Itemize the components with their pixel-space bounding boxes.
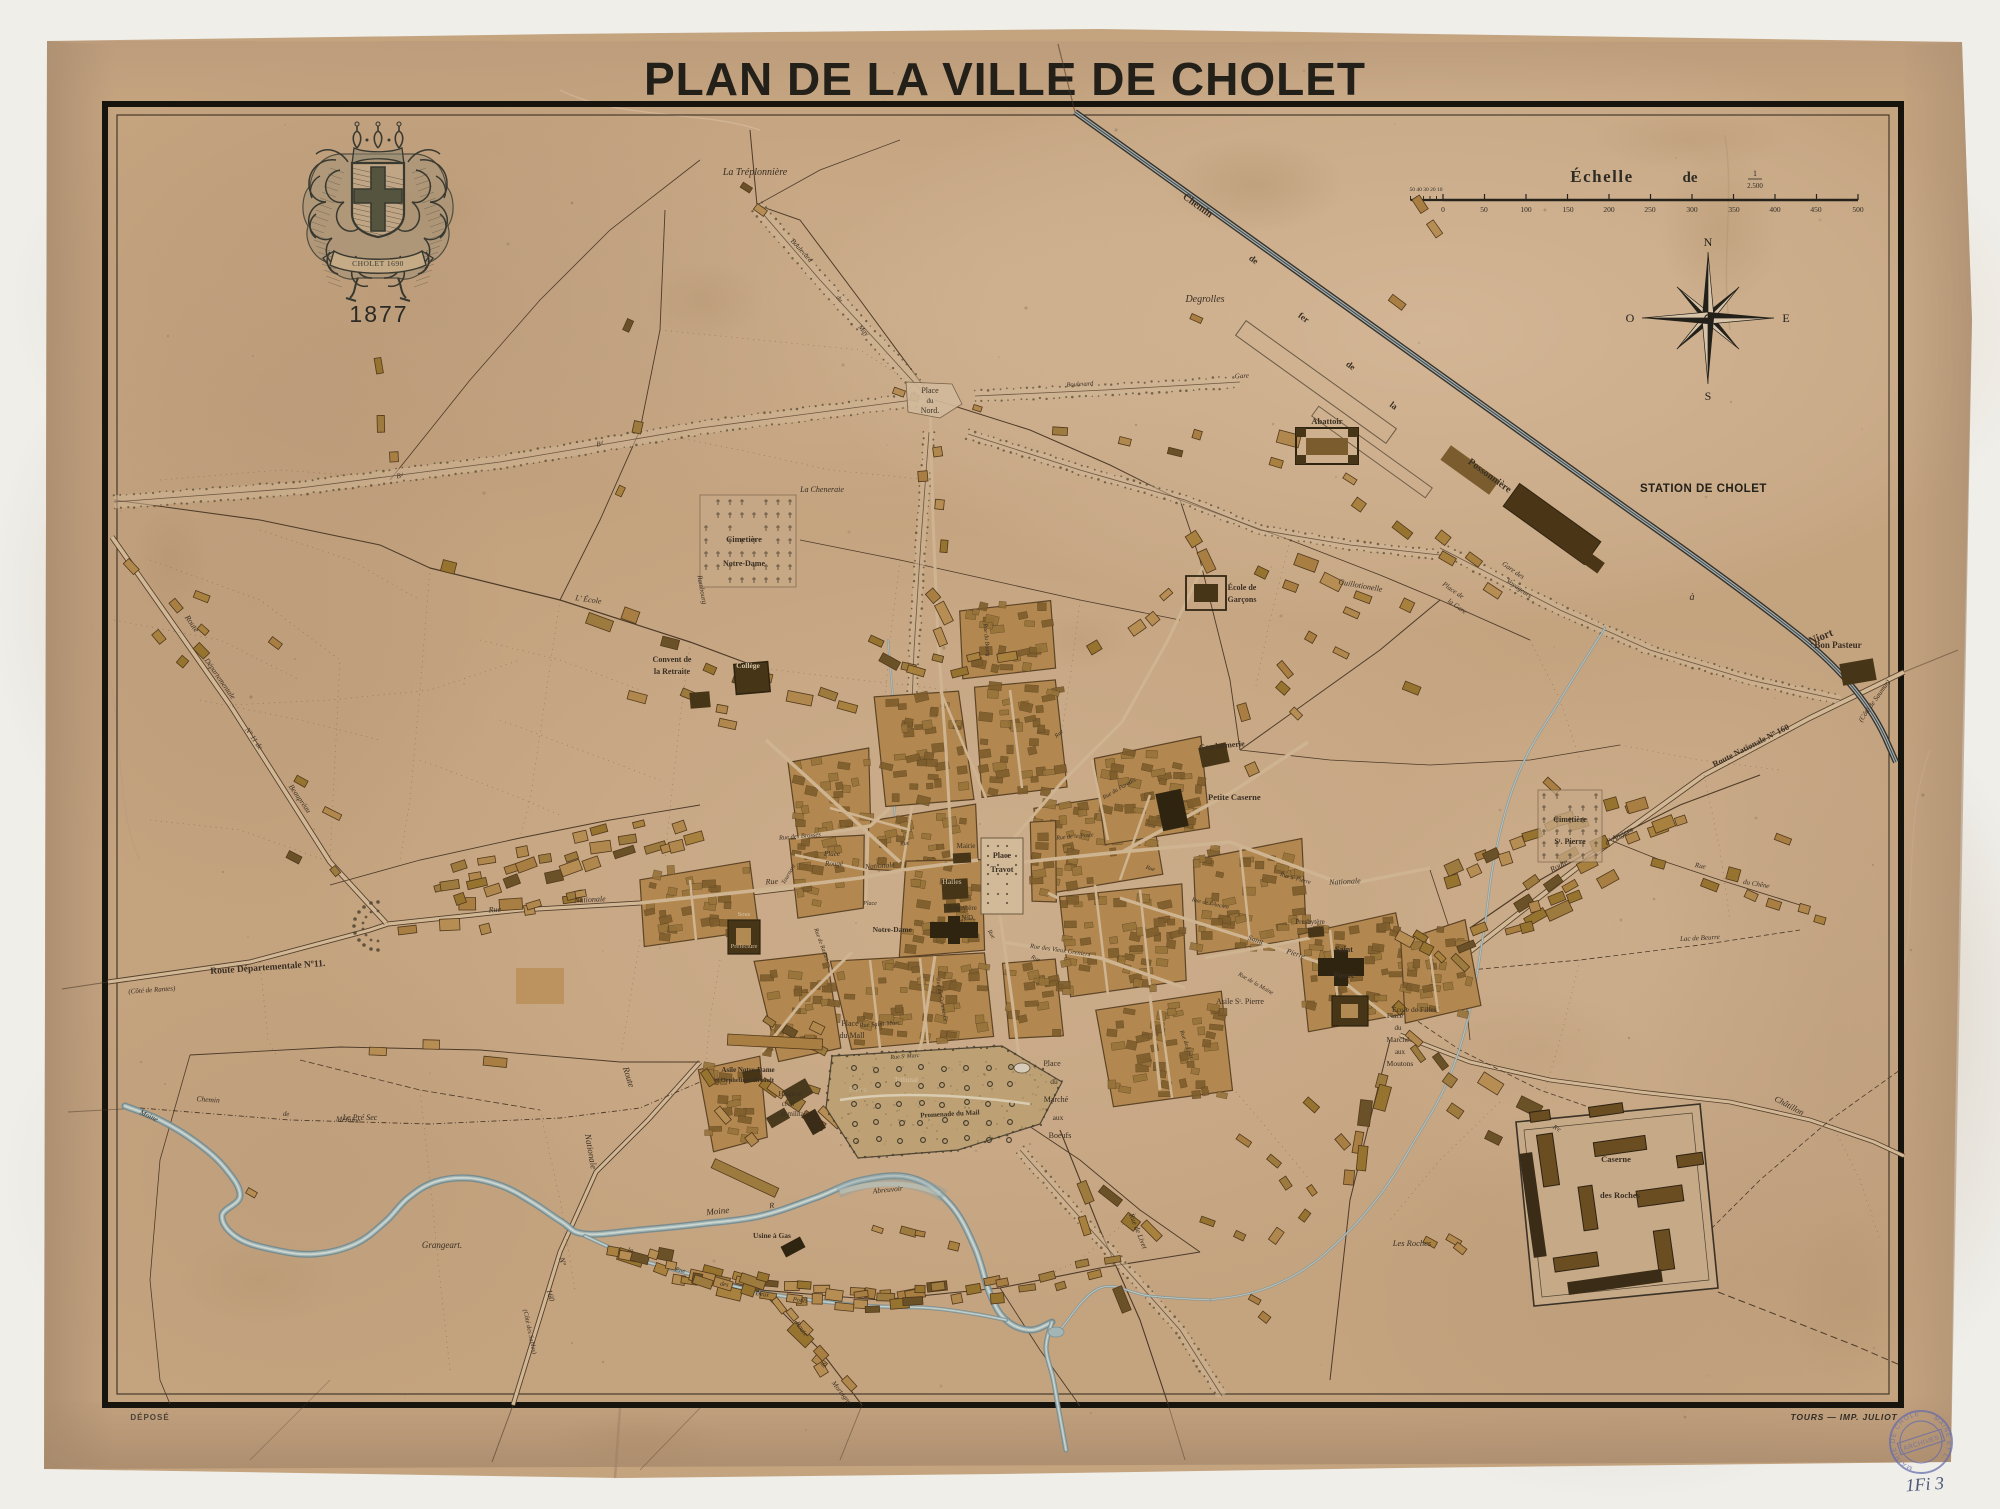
- svg-text:DÉPOSÉ: DÉPOSÉ: [130, 1413, 169, 1422]
- svg-text:1877: 1877: [349, 301, 408, 327]
- svg-text:Caserne: Caserne: [1601, 1154, 1631, 1164]
- svg-text:450: 450: [1810, 205, 1822, 214]
- svg-text:N.D.: N.D.: [961, 914, 975, 922]
- svg-text:Nationale: Nationale: [573, 894, 606, 905]
- svg-text:Rue: Rue: [487, 905, 501, 915]
- svg-text:O: O: [1626, 311, 1635, 325]
- svg-text:Place: Place: [993, 851, 1012, 860]
- svg-text:Les Roches: Les Roches: [1392, 1238, 1432, 1248]
- svg-text:150: 150: [1562, 205, 1574, 214]
- svg-text:Tribunal: Tribunal: [894, 1076, 918, 1084]
- svg-text:1: 1: [1753, 169, 1757, 178]
- svg-text:La Cheneraie: La Cheneraie: [799, 485, 844, 494]
- svg-text:Notre-Dame: Notre-Dame: [723, 559, 766, 568]
- svg-text:Asile Sᵗ. Pierre: Asile Sᵗ. Pierre: [1216, 997, 1264, 1006]
- svg-text:La Tréplonnière: La Tréplonnière: [722, 167, 788, 178]
- svg-text:Asile Notre-Dame: Asile Notre-Dame: [721, 1066, 774, 1074]
- svg-text:Marché: Marché: [1387, 1035, 1411, 1044]
- svg-text:de: de: [283, 1110, 290, 1118]
- svg-text:Gare: Gare: [1235, 372, 1250, 381]
- svg-text:E: E: [1782, 311, 1789, 325]
- svg-text:aux: aux: [1395, 1048, 1406, 1056]
- svg-text:TOURS — IMP. JULIOT: TOURS — IMP. JULIOT: [1791, 1412, 1898, 1422]
- svg-text:Prison: Prison: [849, 1086, 867, 1094]
- svg-text:250: 250: [1644, 205, 1656, 214]
- svg-text:Place: Place: [1387, 1011, 1404, 1020]
- svg-text:0: 0: [1441, 205, 1445, 214]
- svg-text:Place: Place: [1043, 1059, 1061, 1068]
- svg-text:et Orphelinat Breault: et Orphelinat Breault: [714, 1077, 775, 1084]
- svg-text:à: à: [1690, 592, 1695, 603]
- svg-text:Petite Caserne: Petite Caserne: [1208, 792, 1261, 802]
- svg-text:École de: École de: [1228, 582, 1257, 592]
- svg-text:Place: Place: [921, 386, 939, 395]
- svg-text:Marché: Marché: [1044, 1095, 1069, 1104]
- svg-text:Abattoir: Abattoir: [1311, 416, 1342, 426]
- svg-text:Nord.: Nord.: [921, 406, 939, 415]
- svg-text:350: 350: [1728, 205, 1740, 214]
- svg-text:du: du: [927, 397, 935, 405]
- svg-text:Le Pré Sec: Le Pré Sec: [342, 1113, 378, 1122]
- svg-text:Rue: Rue: [764, 877, 778, 887]
- svg-text:Notre-Dame: Notre-Dame: [873, 925, 913, 934]
- svg-text:100: 100: [1520, 205, 1532, 214]
- svg-text:CHOLET 1690: CHOLET 1690: [352, 259, 404, 268]
- svg-text:Hospice: Hospice: [779, 1090, 802, 1098]
- svg-text:50 40 30 20 10: 50 40 30 20 10: [1410, 187, 1443, 193]
- svg-text:2.500: 2.500: [1747, 182, 1763, 190]
- svg-text:Place: Place: [823, 850, 840, 858]
- svg-text:Rougé: Rougé: [824, 860, 844, 868]
- svg-text:Grangeart.: Grangeart.: [422, 1240, 462, 1250]
- svg-text:Cimetière: Cimetière: [1553, 815, 1587, 824]
- svg-text:Usine à Gas: Usine à Gas: [753, 1231, 791, 1240]
- svg-text:aux: aux: [1053, 1113, 1064, 1122]
- svg-text:des Roches: des Roches: [1600, 1190, 1641, 1200]
- svg-text:300: 300: [1686, 205, 1698, 214]
- svg-text:Pierre: Pierre: [1333, 971, 1355, 980]
- svg-text:Presbytère: Presbytère: [947, 904, 977, 912]
- svg-text:Boeufs: Boeufs: [1049, 1131, 1072, 1140]
- svg-text:200: 200: [1603, 205, 1615, 214]
- svg-text:S: S: [1705, 389, 1712, 403]
- svg-text:Place: Place: [862, 901, 877, 907]
- svg-text:50: 50: [1480, 205, 1488, 214]
- svg-text:Convent de: Convent de: [653, 655, 692, 664]
- svg-text:Travot: Travot: [991, 865, 1014, 874]
- svg-text:du Mall: du Mall: [839, 1031, 865, 1040]
- svg-text:Mairie: Mairie: [957, 842, 976, 850]
- svg-text:R: R: [768, 1201, 775, 1211]
- svg-text:STATION DE CHOLET: STATION DE CHOLET: [1640, 483, 1767, 495]
- svg-text:la Retraite: la Retraite: [654, 667, 691, 676]
- svg-text:Chemin: Chemin: [196, 1094, 220, 1105]
- svg-text:Nationale: Nationale: [1328, 876, 1361, 887]
- svg-text:et militaire: et militaire: [781, 1110, 812, 1118]
- svg-text:Halles: Halles: [942, 877, 961, 886]
- svg-text:Boulevard: Boulevard: [1066, 380, 1094, 388]
- svg-text:400: 400: [1769, 205, 1781, 214]
- svg-text:de: de: [1683, 170, 1698, 186]
- svg-text:civil: civil: [782, 1100, 794, 1108]
- svg-text:Garçons: Garçons: [1228, 595, 1257, 604]
- svg-text:Collège: Collège: [736, 661, 760, 670]
- svg-text:PLAN DE LA VILLE DE CHOLE: PLAN DE LA VILLE DE CHOLET: [644, 53, 1366, 105]
- svg-text:du: du: [1050, 1077, 1058, 1086]
- svg-text:N: N: [1704, 235, 1713, 249]
- svg-text:Cimetière: Cimetière: [726, 534, 762, 544]
- svg-text:Sous: Sous: [738, 911, 751, 918]
- svg-text:Place: Place: [841, 1019, 859, 1028]
- svg-text:Moutons: Moutons: [1387, 1059, 1414, 1068]
- svg-text:du: du: [1395, 1024, 1403, 1032]
- svg-text:Préfecture: Préfecture: [731, 943, 758, 950]
- svg-text:Échelle: Échelle: [1570, 167, 1633, 186]
- svg-text:Sᵗ. Pierre: Sᵗ. Pierre: [1554, 837, 1586, 846]
- svg-text:Degrolles: Degrolles: [1184, 294, 1224, 305]
- svg-text:1Fi 3: 1Fi 3: [1905, 1473, 1945, 1496]
- svg-text:Saint: Saint: [1335, 945, 1353, 954]
- svg-text:500: 500: [1852, 205, 1864, 214]
- svg-text:Presbytère: Presbytère: [1295, 918, 1325, 926]
